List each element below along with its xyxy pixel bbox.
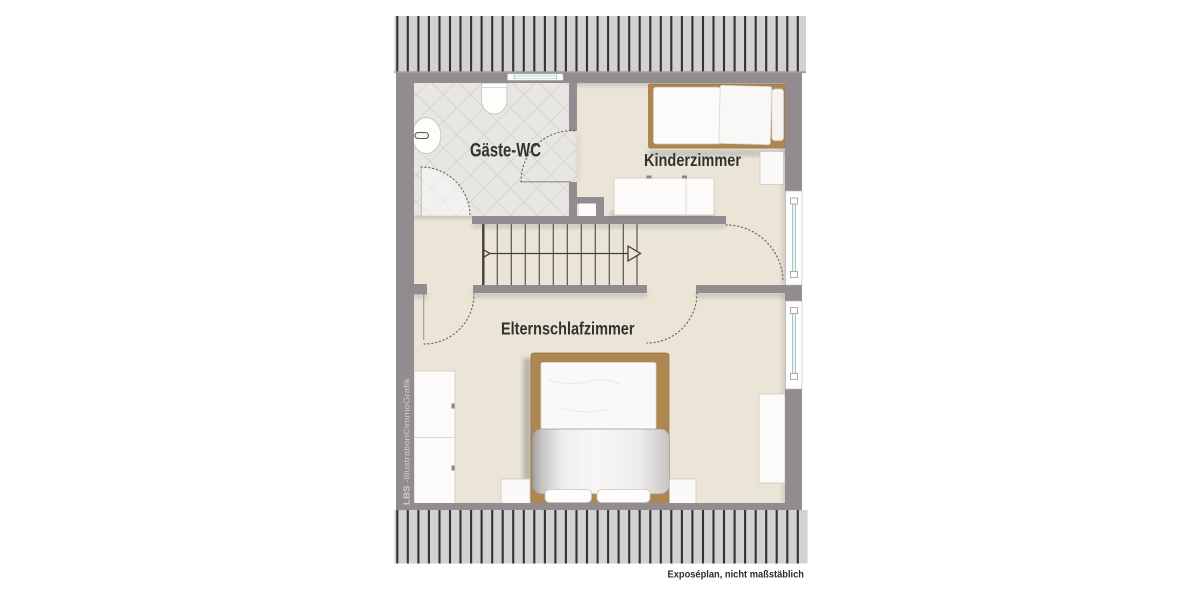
svg-text:Kinderzimmer: Kinderzimmer [644,150,741,170]
svg-text:Elternschlafzimmer: Elternschlafzimmer [501,319,635,339]
svg-text:Gäste-WC: Gäste-WC [470,140,541,161]
svg-text:Exposéplan, nicht maßstäblich: Exposéplan, nicht maßstäblich [668,568,805,580]
svg-text:LBS -Illustration©immoGrafik: LBS -Illustration©immoGrafik [403,377,412,505]
